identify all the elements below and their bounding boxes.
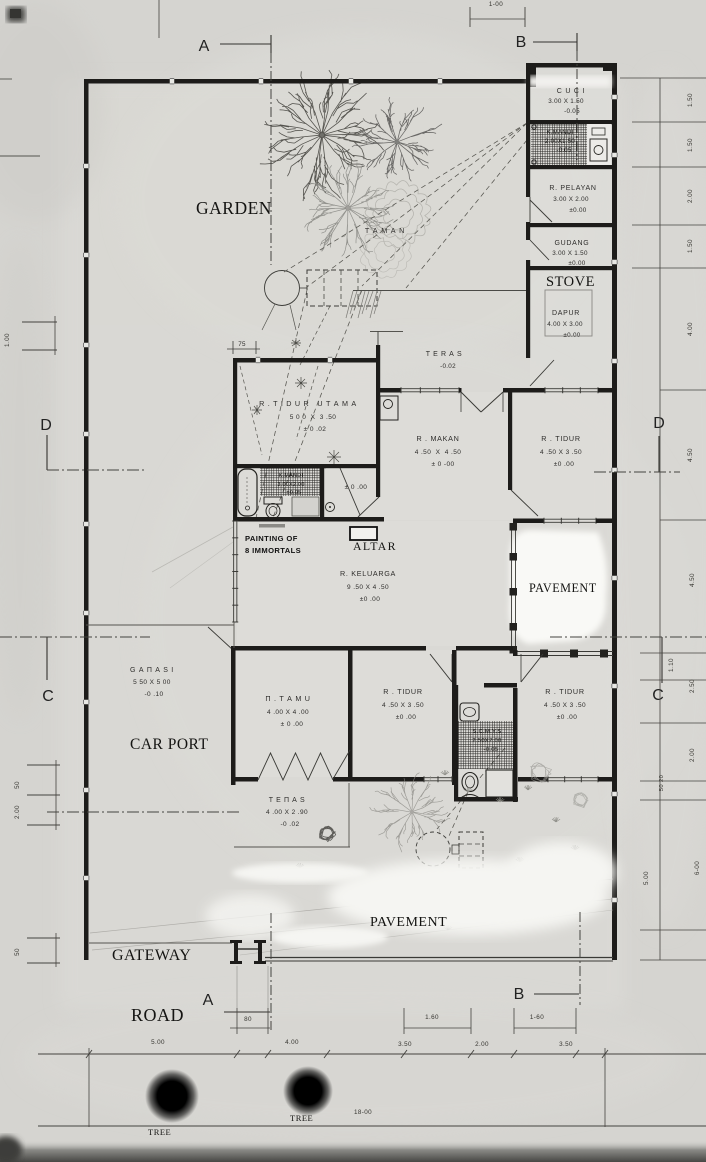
svg-text:DAPUR: DAPUR	[552, 310, 580, 317]
svg-text:5 50 X 5 00: 5 50 X 5 00	[133, 679, 171, 686]
svg-text:C U C I: C U C I	[557, 88, 586, 95]
svg-text:D: D	[653, 415, 665, 432]
svg-text:18-00: 18-00	[354, 1109, 372, 1116]
svg-text:3.00 X 1.50: 3.00 X 1.50	[552, 250, 588, 257]
svg-text:8 IMMORTALS: 8 IMMORTALS	[245, 546, 301, 555]
svg-text:2.50: 2.50	[689, 679, 696, 693]
svg-text:±0.00: ±0.00	[568, 260, 585, 267]
svg-text:G A Π A S I: G A Π A S I	[130, 667, 174, 674]
svg-text:4.00 X 3.00: 4.00 X 3.00	[547, 321, 583, 328]
svg-text:4.50: 4.50	[689, 573, 696, 587]
svg-text:PAINTING OF: PAINTING OF	[245, 534, 298, 543]
svg-text:±0.00: ±0.00	[569, 207, 586, 214]
svg-text:2.00: 2.00	[689, 748, 696, 762]
svg-text:4.50: 4.50	[687, 448, 694, 462]
svg-text:1.60: 1.60	[425, 1014, 439, 1021]
svg-text:GUDANG: GUDANG	[555, 240, 590, 247]
svg-text:K.MANDI: K.MANDI	[279, 473, 304, 479]
svg-text:6-00: 6-00	[694, 861, 701, 875]
svg-text:± 0 -00: ± 0 -00	[432, 461, 455, 468]
svg-text:R. PELAYAN: R. PELAYAN	[549, 185, 596, 192]
svg-text:1.50: 1.50	[687, 93, 694, 107]
svg-text:R . TIDUR: R . TIDUR	[541, 434, 580, 443]
svg-text:T E Π A S: T E Π A S	[269, 797, 306, 804]
svg-text:GARDEN: GARDEN	[196, 198, 272, 218]
svg-text:4 .50 X 3 .50: 4 .50 X 3 .50	[544, 702, 586, 709]
svg-text:-0 .02: -0 .02	[280, 821, 299, 828]
svg-text:PAVEMENT: PAVEMENT	[529, 581, 597, 595]
svg-text:C: C	[42, 688, 54, 705]
svg-text:2.00: 2.00	[475, 1041, 489, 1048]
svg-text:2.00X1.50: 2.00X1.50	[545, 139, 575, 145]
svg-text:±0 .00: ±0 .00	[557, 714, 577, 721]
svg-text:B: B	[516, 34, 527, 51]
svg-text:R . TIDUR: R . TIDUR	[383, 687, 422, 696]
svg-text:ROAD: ROAD	[131, 1005, 184, 1025]
svg-text:±0.00: ±0.00	[563, 332, 580, 339]
svg-text:C: C	[652, 687, 664, 704]
svg-text:1.10: 1.10	[668, 658, 675, 672]
svg-text:R . TIDUR: R . TIDUR	[545, 687, 584, 696]
svg-text:5 0 0 X 3 .50: 5 0 0 X 3 .50	[290, 414, 336, 421]
svg-text:K.MANDI: K.MANDI	[546, 130, 573, 136]
svg-text:GATEWAY: GATEWAY	[112, 947, 191, 964]
svg-text:TREE: TREE	[290, 1113, 313, 1123]
svg-text:80: 80	[244, 1016, 252, 1023]
svg-text:-0.05: -0.05	[564, 108, 580, 115]
svg-text:PAVEMENT: PAVEMENT	[370, 915, 447, 930]
svg-text:1-60: 1-60	[530, 1014, 544, 1021]
svg-text:A: A	[199, 38, 210, 55]
svg-text:3.50: 3.50	[398, 1041, 412, 1048]
svg-text:4.00: 4.00	[285, 1039, 299, 1046]
svg-text:50: 50	[14, 948, 21, 956]
svg-text:±0 .00: ±0 .00	[396, 714, 416, 721]
svg-text:9 .50 X 4 .50: 9 .50 X 4 .50	[347, 584, 389, 591]
svg-text:-0.02: -0.02	[440, 363, 456, 370]
svg-text:±0.05: ±0.05	[287, 490, 302, 496]
svg-text:4 .00 X 2 .90: 4 .00 X 2 .90	[266, 809, 308, 816]
svg-text:STOVE: STOVE	[546, 274, 595, 290]
svg-text:50: 50	[14, 781, 21, 789]
svg-text:2.00: 2.00	[687, 189, 694, 203]
svg-text:2.50X2.00: 2.50X2.00	[472, 738, 501, 744]
svg-text:±0 .00: ±0 .00	[554, 461, 574, 468]
svg-text:1.00: 1.00	[4, 333, 11, 347]
svg-text:1.50: 1.50	[687, 138, 694, 152]
svg-text:± 0 .02: ± 0 .02	[304, 426, 327, 433]
svg-text:± 0 .00: ± 0 .00	[281, 721, 304, 728]
svg-text:3.50: 3.50	[559, 1041, 573, 1048]
svg-text:T A M A N: T A M A N	[365, 226, 405, 235]
svg-text:-0.05: -0.05	[484, 747, 499, 753]
svg-text:CAR PORT: CAR PORT	[130, 736, 208, 753]
svg-text:TREE: TREE	[148, 1127, 171, 1137]
svg-text:50 20: 50 20	[659, 775, 665, 792]
svg-text:T E R A S: T E R A S	[426, 351, 463, 358]
svg-text:5.00: 5.00	[643, 871, 650, 885]
svg-text:Π . T A M U: Π . T A M U	[265, 694, 310, 703]
svg-text:±0 .00: ±0 .00	[360, 596, 380, 603]
svg-text:4 .50 X 3 .50: 4 .50 X 3 .50	[540, 449, 582, 456]
svg-text:3.00 X 1.50: 3.00 X 1.50	[548, 98, 584, 105]
svg-text:2.00: 2.00	[14, 805, 21, 819]
svg-text:4 .00 X 4 .00: 4 .00 X 4 .00	[267, 709, 309, 716]
svg-text:3.00 X 2.00: 3.00 X 2.00	[553, 196, 589, 203]
svg-text:D: D	[40, 417, 52, 434]
svg-text:R . MAKAN: R . MAKAN	[416, 434, 459, 443]
svg-text:3.00X2.00: 3.00X2.00	[277, 482, 304, 488]
svg-text:-0 .10: -0 .10	[144, 691, 163, 698]
svg-text:ALTAR: ALTAR	[353, 539, 397, 553]
svg-text:1-00: 1-00	[489, 1, 503, 8]
svg-text:S.C.M.Y.S: S.C.M.Y.S	[472, 729, 501, 735]
svg-text:4.00: 4.00	[687, 322, 694, 336]
svg-text:4 .50 X 3 .50: 4 .50 X 3 .50	[382, 702, 424, 709]
svg-text:75: 75	[238, 341, 246, 348]
svg-text:-0.05: -0.05	[556, 148, 572, 154]
svg-text:5.00: 5.00	[151, 1039, 165, 1046]
svg-text:4 .50 X 4 .50: 4 .50 X 4 .50	[415, 449, 461, 456]
svg-text:A: A	[203, 992, 214, 1009]
svg-text:B: B	[514, 986, 525, 1003]
svg-text:1.50: 1.50	[687, 239, 694, 253]
svg-text:R. KELUARGA: R. KELUARGA	[340, 569, 396, 578]
